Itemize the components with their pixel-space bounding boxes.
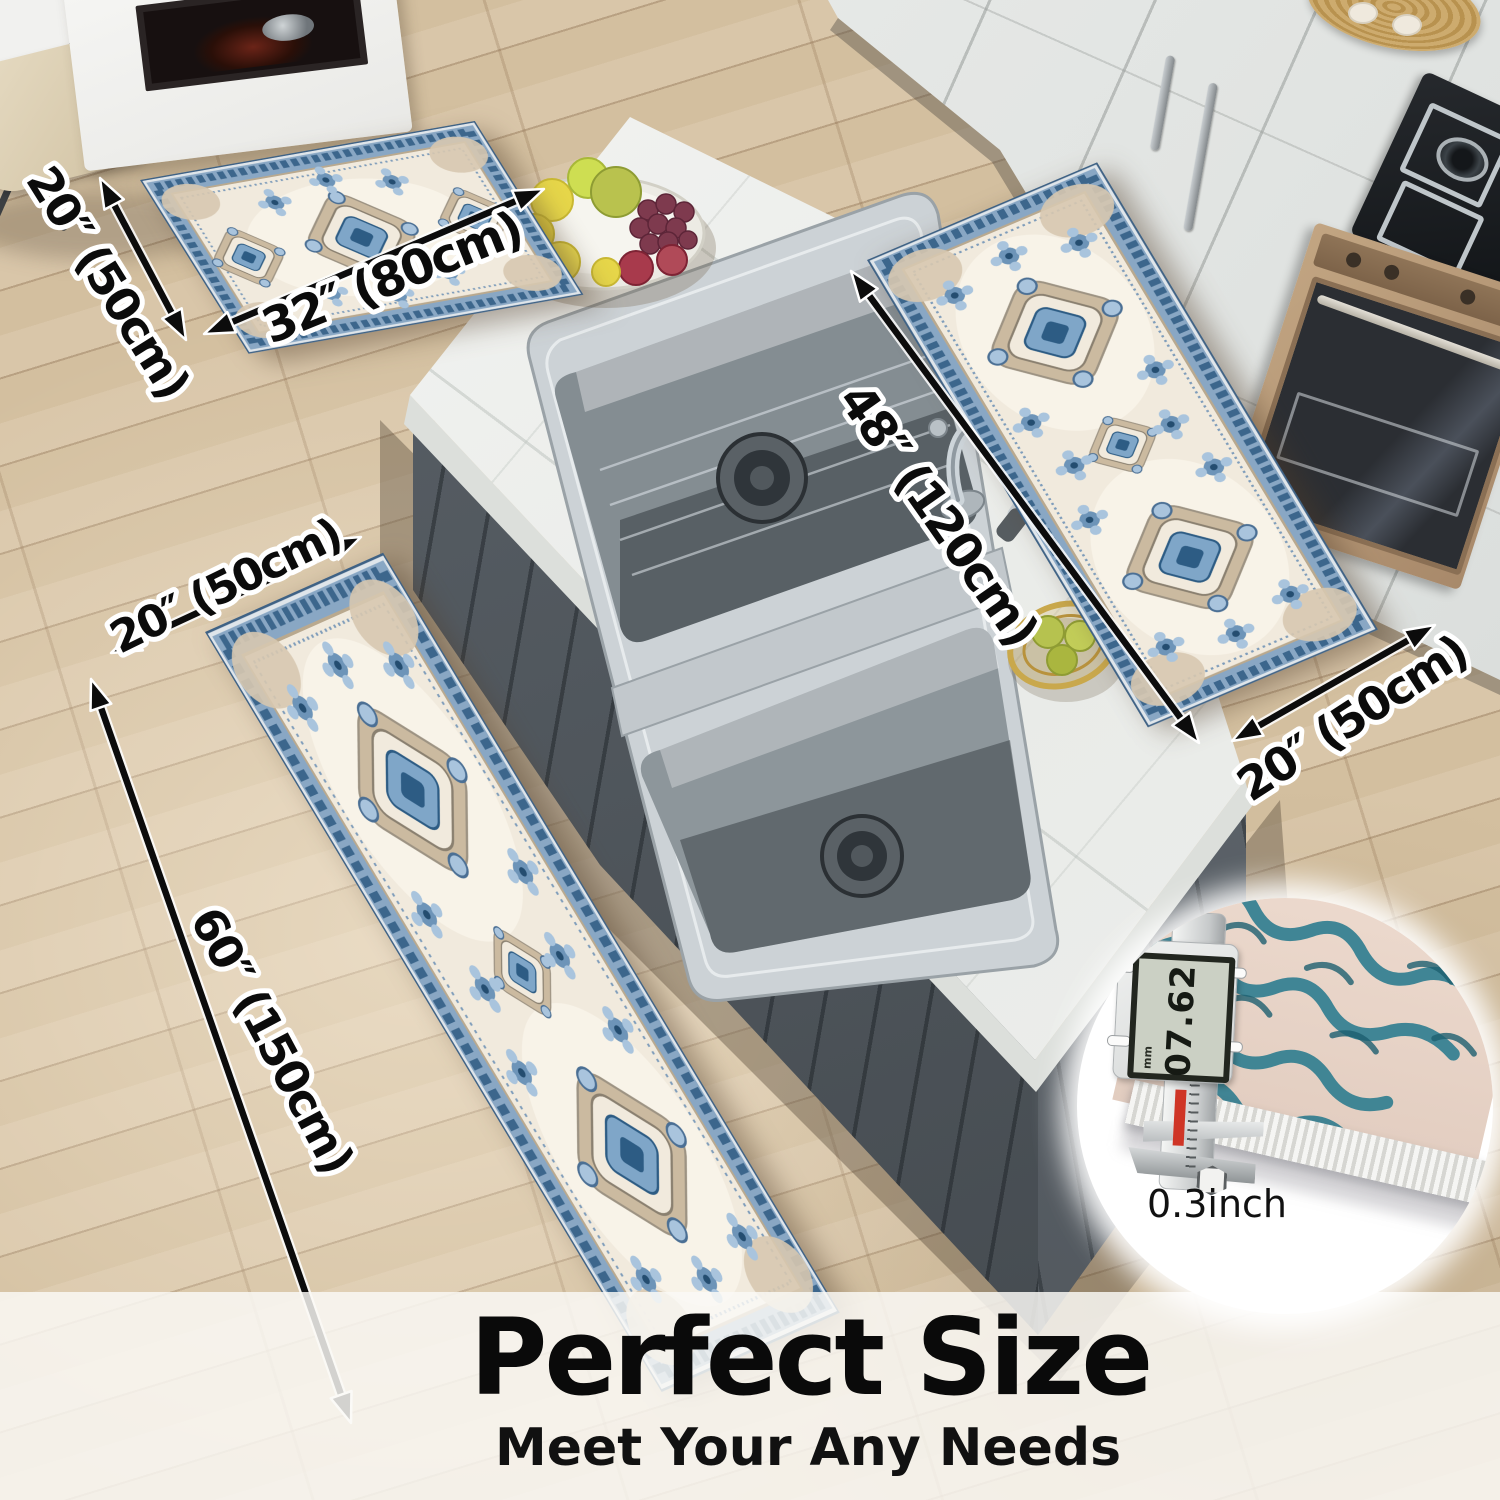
page-subtitle: Meet Your Any Needs <box>495 1418 1121 1478</box>
caliper-lcd: 07.62 mm <box>1127 952 1235 1083</box>
product-size-infographic: 20″ (50cm) 32″ (80cm) 48″ (120cm) 20″ (5… <box>0 0 1500 1500</box>
thickness-value-label: 0.3inch <box>1127 1182 1307 1226</box>
caliper: 07.62 mm <box>1099 908 1274 1216</box>
caliper-display: 07.62 mm <box>1112 938 1239 1084</box>
thickness-inset-circle: 07.62 mm 0.3inch <box>1077 898 1493 1314</box>
caliper-button <box>1107 1035 1132 1047</box>
caliper-unit: mm <box>1141 1046 1155 1070</box>
caliper-reading: 07.62 <box>1158 961 1204 1081</box>
page-title: Perfect Size <box>470 1296 1151 1419</box>
caliper-button <box>1111 961 1136 973</box>
